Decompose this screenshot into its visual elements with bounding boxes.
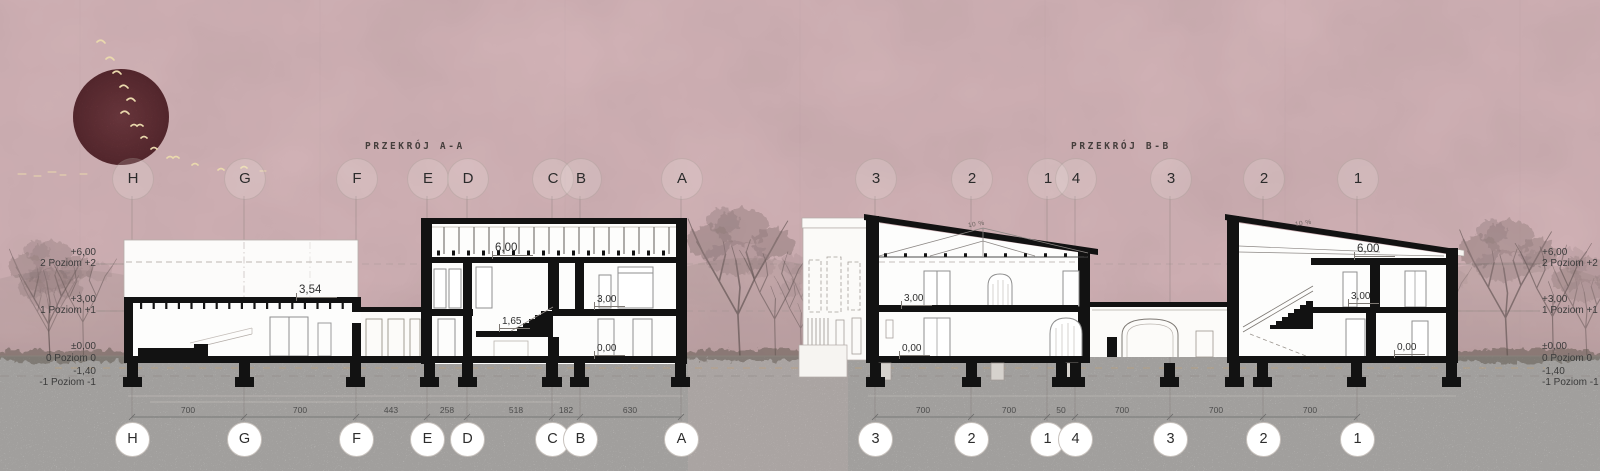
section-b-title: PRZEKRÓJ B-B: [1071, 141, 1171, 152]
elevation-value: -1,40: [1542, 366, 1565, 377]
grid-bubble: F: [339, 422, 374, 457]
grid-letter-top: F: [336, 158, 378, 200]
grid-bubble: H: [115, 422, 150, 457]
dimension-label: 700: [1115, 405, 1129, 415]
dimension-label: 50: [1056, 405, 1065, 415]
grid-bubble: G: [227, 422, 262, 457]
grid-number-top: 4: [1055, 158, 1097, 200]
dimension-label: 182: [559, 405, 573, 415]
dimension-label: 700: [1002, 405, 1016, 415]
elevation-value: +3,00: [1542, 294, 1567, 305]
grid-bubble: 3: [858, 422, 893, 457]
dimension-label: 443: [384, 405, 398, 415]
section-a-title: PRZEKRÓJ A-A: [365, 141, 465, 152]
level-label: 6,00: [492, 242, 533, 256]
elevation-value: +3,00: [0, 294, 98, 305]
grid-bubble: 4: [1058, 422, 1093, 457]
grid-number-top: 2: [951, 158, 993, 200]
elevation-value: ±0,00: [1542, 341, 1567, 352]
sun-icon: [73, 69, 169, 165]
elevation-name: 1 Poziom +1: [1542, 305, 1598, 316]
grid-letter-top: B: [560, 158, 602, 200]
level-label: 3,00: [1348, 291, 1379, 304]
level-label: 0,00: [899, 343, 930, 356]
elevation-value: +6,00: [0, 247, 98, 258]
dimension-label: 258: [440, 405, 454, 415]
grid-number-top: 3: [1150, 158, 1192, 200]
architectural-section-drawing: PRZEKRÓJ A-A PRZEKRÓJ B-B H G F E D C B …: [0, 0, 1600, 471]
grid-bubble: A: [664, 422, 699, 457]
grid-letter-top: G: [224, 158, 266, 200]
level-label: 0,00: [594, 343, 625, 356]
grid-bubble: 2: [1246, 422, 1281, 457]
dimension-label: 700: [1209, 405, 1223, 415]
level-label: 3,54: [296, 284, 337, 298]
dimension-label: 630: [623, 405, 637, 415]
elevation-name: -1 Poziom -1: [0, 377, 98, 388]
grid-letter-top: A: [661, 158, 703, 200]
level-label: 1,65: [499, 316, 530, 329]
dimension-label: 700: [293, 405, 307, 415]
grid-bubble: 1: [1340, 422, 1375, 457]
dimension-label: 518: [509, 405, 523, 415]
elevation-name: 2 Poziom +2: [1542, 258, 1598, 269]
elevation-value: +6,00: [1542, 247, 1567, 258]
grid-bubble: E: [410, 422, 445, 457]
grid-number-top: 1: [1337, 158, 1379, 200]
elevation-name: 0 Poziom 0: [1542, 353, 1592, 364]
grid-bubble: D: [450, 422, 485, 457]
grid-letter-top: H: [112, 158, 154, 200]
level-label: 3,00: [594, 294, 625, 307]
grid-letter-top: D: [447, 158, 489, 200]
level-label: 3,00: [901, 293, 932, 306]
elevation-name: 1 Poziom +1: [0, 305, 98, 316]
elevation-value: ±0,00: [0, 341, 98, 352]
dimension-label: 700: [1303, 405, 1317, 415]
grid-bubble: B: [563, 422, 598, 457]
grid-number-top: 3: [855, 158, 897, 200]
elevation-name: 0 Poziom 0: [0, 353, 98, 364]
elevation-value: -1,40: [0, 366, 98, 377]
grid-bubble: 3: [1153, 422, 1188, 457]
level-label: 0,00: [1394, 342, 1425, 355]
drawing-canvas: [0, 0, 1600, 471]
grid-bubble: 2: [954, 422, 989, 457]
level-label: 6,00: [1354, 243, 1395, 257]
elevation-name: -1 Poziom -1: [1542, 377, 1599, 388]
grid-number-top: 2: [1243, 158, 1285, 200]
dimension-label: 700: [916, 405, 930, 415]
grid-letter-top: E: [407, 158, 449, 200]
dimension-label: 700: [181, 405, 195, 415]
elevation-name: 2 Poziom +2: [0, 258, 98, 269]
